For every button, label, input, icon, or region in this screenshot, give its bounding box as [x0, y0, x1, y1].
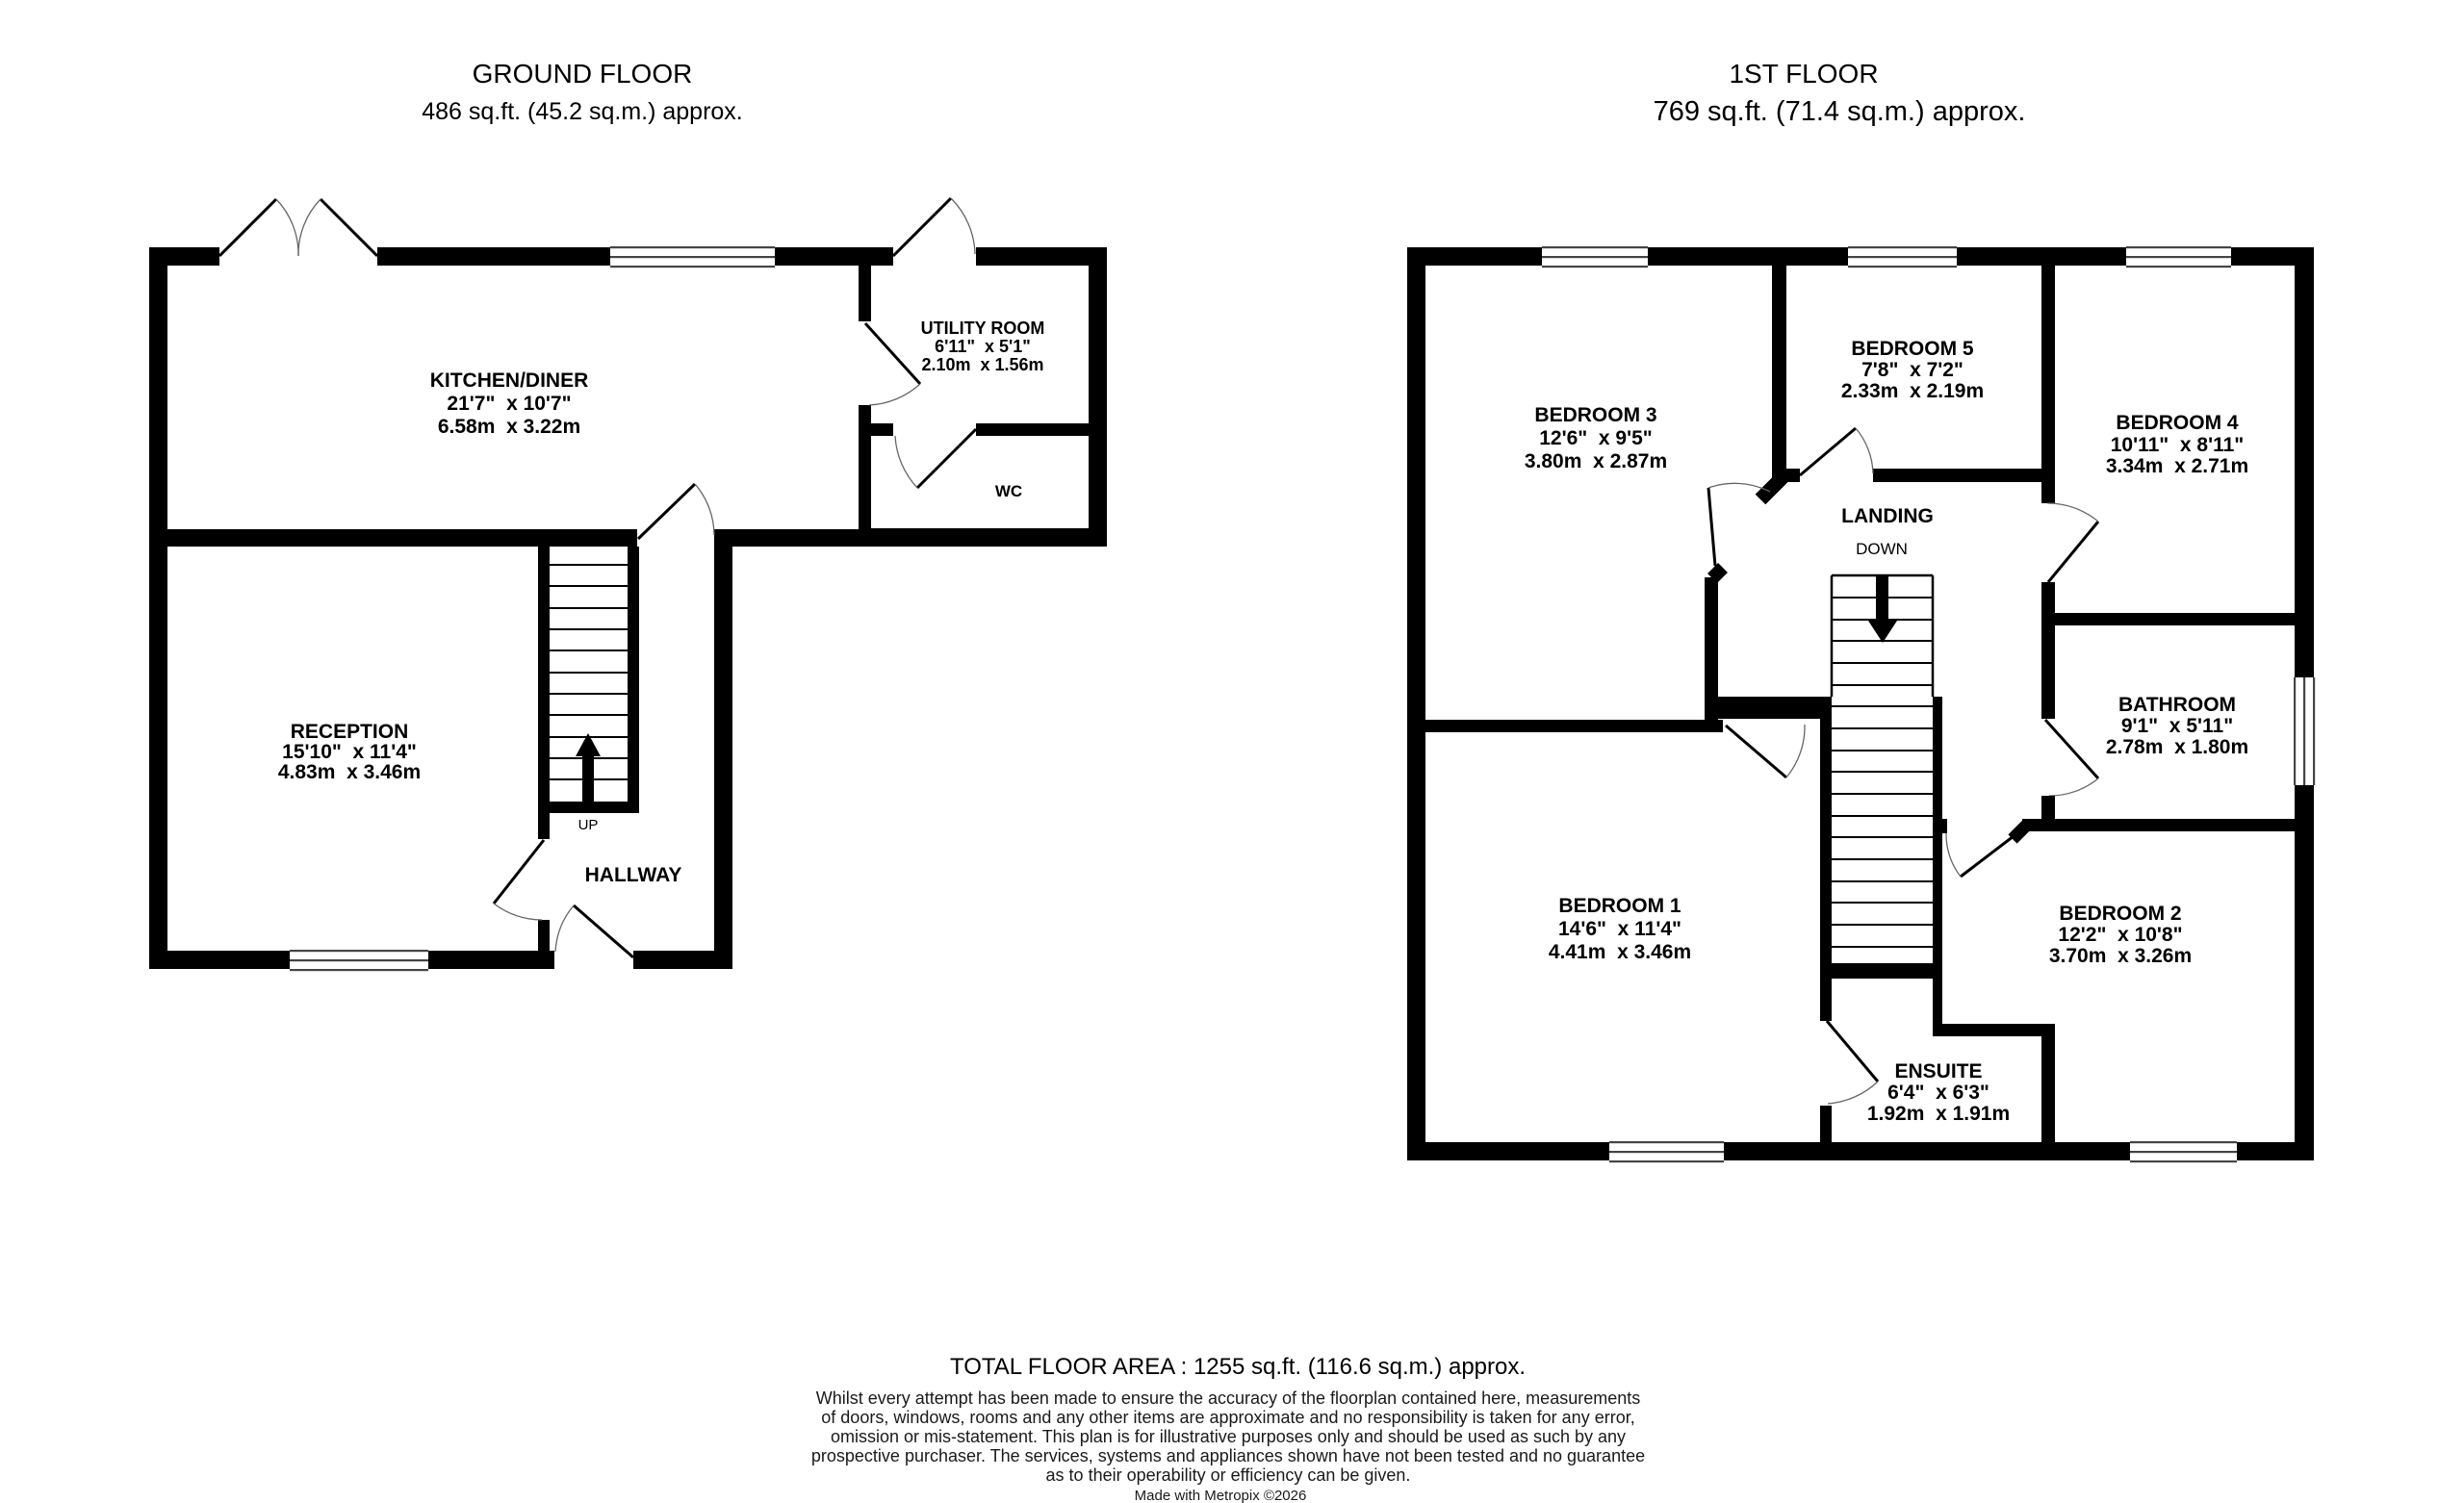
svg-text:15'10" x 11'4": 15'10" x 11'4" — [282, 741, 417, 763]
svg-text:3.70m x 3.26m: 3.70m x 3.26m — [2049, 945, 2192, 967]
svg-text:UP: UP — [578, 817, 599, 833]
svg-text:12'6" x 9'5": 12'6" x 9'5" — [1539, 427, 1652, 449]
svg-text:DOWN: DOWN — [1856, 540, 1908, 558]
svg-text:BEDROOM 1: BEDROOM 1 — [1558, 895, 1681, 917]
svg-text:2.10m x 1.56m: 2.10m x 1.56m — [921, 355, 1043, 374]
svg-text:HALLWAY: HALLWAY — [585, 864, 682, 886]
svg-text:BATHROOM: BATHROOM — [2118, 694, 2236, 716]
svg-text:LANDING: LANDING — [1841, 505, 1934, 527]
svg-text:10'11" x 8'11": 10'11" x 8'11" — [2111, 434, 2245, 456]
svg-text:Whilst every attempt has been: Whilst every attempt has been made to en… — [816, 1388, 1640, 1408]
svg-text:2.78m x 1.80m: 2.78m x 1.80m — [2106, 736, 2248, 758]
svg-text:769 sq.ft. (71.4 sq.m.) approx: 769 sq.ft. (71.4 sq.m.) approx. — [1654, 96, 2026, 127]
svg-text:1ST FLOOR: 1ST FLOOR — [1729, 59, 1878, 89]
svg-text:BEDROOM 5: BEDROOM 5 — [1851, 338, 1974, 360]
svg-text:KITCHEN/DINER: KITCHEN/DINER — [430, 369, 589, 392]
svg-text:486 sq.ft. (45.2 sq.m.) approx: 486 sq.ft. (45.2 sq.m.) approx. — [422, 98, 743, 125]
svg-text:UTILITY ROOM: UTILITY ROOM — [921, 318, 1045, 338]
svg-text:7'8" x 7'2": 7'8" x 7'2" — [1861, 359, 1963, 381]
svg-text:6'4" x 6'3": 6'4" x 6'3" — [1887, 1082, 1989, 1104]
svg-text:BEDROOM 4: BEDROOM 4 — [2116, 412, 2239, 434]
svg-text:9'1" x 5'11": 9'1" x 5'11" — [2121, 715, 2233, 737]
svg-text:ENSUITE: ENSUITE — [1894, 1060, 1982, 1083]
svg-text:omission or mis-statement. Thi: omission or mis-statement. This plan is … — [831, 1427, 1626, 1446]
svg-text:TOTAL FLOOR AREA : 1255 sq.ft.: TOTAL FLOOR AREA : 1255 sq.ft. (116.6 sq… — [950, 1354, 1526, 1380]
svg-text:BEDROOM 2: BEDROOM 2 — [2059, 903, 2181, 925]
svg-text:6'11" x 5'1": 6'11" x 5'1" — [935, 337, 1031, 356]
svg-text:BEDROOM 3: BEDROOM 3 — [1534, 404, 1656, 426]
svg-text:2.33m x 2.19m: 2.33m x 2.19m — [1841, 380, 1984, 402]
svg-text:4.41m x 3.46m: 4.41m x 3.46m — [1549, 941, 1691, 963]
svg-text:21'7" x 10'7": 21'7" x 10'7" — [447, 393, 571, 415]
svg-text:3.80m x 2.87m: 3.80m x 2.87m — [1525, 450, 1667, 472]
svg-text:4.83m x 3.46m: 4.83m x 3.46m — [278, 761, 421, 783]
svg-text:12'2" x 10'8": 12'2" x 10'8" — [2058, 924, 2182, 946]
svg-text:GROUND FLOOR: GROUND FLOOR — [473, 59, 693, 89]
svg-text:RECEPTION: RECEPTION — [291, 721, 409, 743]
svg-text:1.92m x 1.91m: 1.92m x 1.91m — [1867, 1103, 2010, 1125]
svg-text:14'6" x 11'4": 14'6" x 11'4" — [1558, 918, 1681, 940]
svg-text:Made with Metropix ©2026: Made with Metropix ©2026 — [1135, 1488, 1307, 1503]
svg-text:as to their operability or eff: as to their operability or efficiency ca… — [1046, 1465, 1411, 1485]
svg-text:3.34m x 2.71m: 3.34m x 2.71m — [2106, 455, 2248, 477]
svg-text:WC: WC — [995, 482, 1022, 500]
svg-text:prospective purchaser. The ser: prospective purchaser. The services, sys… — [811, 1446, 1645, 1465]
svg-text:of doors, windows, rooms and a: of doors, windows, rooms and any other i… — [821, 1408, 1634, 1427]
svg-text:6.58m x 3.22m: 6.58m x 3.22m — [438, 416, 580, 438]
